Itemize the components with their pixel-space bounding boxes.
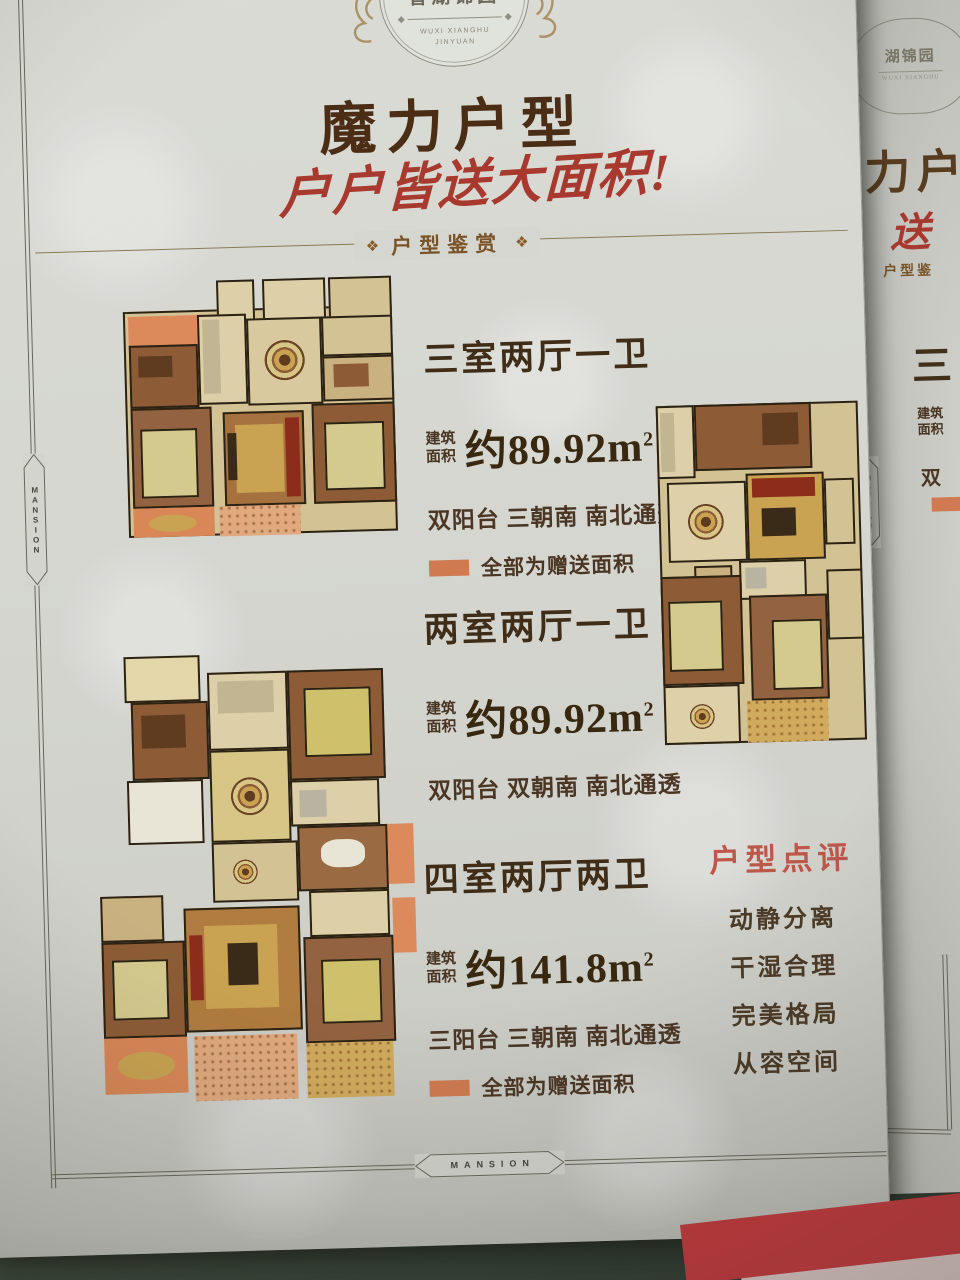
unit-card-2room: 两室两厅一卫 建筑 面积 约89.92m2 双阳台 双朝南 南北通透 xyxy=(423,595,679,806)
floorplan-4room xyxy=(83,644,428,1113)
shelves xyxy=(824,477,855,544)
area-label: 建筑 面积 xyxy=(426,701,457,736)
second-page-unit-partial: 三 xyxy=(911,333,953,392)
review-item: 动静分离 xyxy=(691,896,874,936)
mansion-lens-bottom: MANSION xyxy=(414,1150,565,1178)
carpet-medallion xyxy=(228,853,262,891)
furniture xyxy=(138,355,173,377)
dining-table xyxy=(680,495,731,549)
area-superscript: 2 xyxy=(643,948,655,970)
unit-title: 四室两厅两卫 xyxy=(423,845,674,903)
review-item: 干湿合理 xyxy=(693,944,876,984)
section-title: 户型鉴赏 xyxy=(391,227,504,260)
desk xyxy=(142,715,186,748)
review-items: 动静分离 干湿合理 完美格局 从容空间 xyxy=(691,896,878,1080)
floorplan-3room xyxy=(113,275,407,546)
logo-subtitle-2: JINYUAN xyxy=(381,35,529,50)
room xyxy=(826,568,864,639)
storage-room xyxy=(127,779,205,845)
closet xyxy=(100,895,164,943)
area-value: 约89.92m2 xyxy=(464,412,655,478)
balcony xyxy=(307,1040,395,1098)
tv xyxy=(762,507,797,536)
brochure-photo: 湖锦园 WUXI XIANGHU 力户 送 户型鉴 三 建筑 面积 双 M A … xyxy=(0,0,960,1280)
bathroom xyxy=(321,315,394,356)
area-label-line1: 建筑 xyxy=(917,405,943,421)
unit-area: 建筑 面积 约141.8m2 xyxy=(425,932,677,1000)
unit-area: 建筑 面积 约89.92m2 xyxy=(425,682,677,750)
unit-title: 三室两厅一卫 xyxy=(422,325,673,383)
carpet-medallion xyxy=(258,328,311,393)
main-page: MANSION M A N S I O N 香湖锦园 xyxy=(0,0,891,1258)
bonus-label: 全部为赠送面积 xyxy=(481,548,636,582)
bed xyxy=(303,687,371,758)
balcony xyxy=(747,699,829,743)
bonus-swatch xyxy=(429,1080,469,1097)
balcony xyxy=(387,824,415,885)
bathtub xyxy=(321,839,365,868)
review-panel: 户型点评 动静分离 干湿合理 完美格局 从容空间 xyxy=(690,831,879,1093)
logo-name: 香湖锦园 xyxy=(380,0,529,11)
bonus-swatch xyxy=(429,560,469,577)
review-item: 从容空间 xyxy=(695,1040,878,1080)
unit-features: 双阳台 三朝南 南北通透 xyxy=(427,495,678,536)
area-value: 约89.92m2 xyxy=(464,682,655,748)
bonus-note: 全部为赠送面积 xyxy=(429,547,680,584)
counter xyxy=(202,320,221,394)
area-label: 建筑 面积 xyxy=(426,951,457,986)
second-page-section-partial: 户型鉴 xyxy=(883,259,935,280)
balcony xyxy=(128,315,203,346)
unit-card-3room: 三室两厅一卫 建筑 面积 约89.92m2 双阳台 三朝南 南北通透 全部为赠送… xyxy=(422,325,679,584)
unit-features: 双阳台 双朝南 南北通透 xyxy=(428,765,679,806)
diamond-icon xyxy=(398,16,405,23)
bed xyxy=(140,428,199,498)
fixture xyxy=(745,567,766,589)
second-logo-name: 湖锦园 xyxy=(852,43,960,67)
balcony xyxy=(194,1034,299,1101)
bed xyxy=(321,958,383,1024)
counter xyxy=(217,680,274,714)
area-value: 约141.8m2 xyxy=(464,933,655,999)
logo-subtitle-1: WUXI XIANGHU xyxy=(381,25,529,40)
balcony xyxy=(123,655,201,703)
second-page-slogan-partial: 送 xyxy=(889,200,931,259)
furniture xyxy=(761,412,798,444)
area-superscript: 2 xyxy=(643,698,655,720)
dining-table xyxy=(223,768,278,825)
tv xyxy=(228,943,259,985)
unit-card-4room: 四室两厅两卫 建筑 面积 约141.8m2 三阳台 三朝南 南北通透 全部为赠送… xyxy=(423,845,680,1104)
balcony xyxy=(392,897,417,953)
unit-area: 建筑 面积 约89.92m2 xyxy=(425,412,677,480)
second-page-bonus-swatch xyxy=(932,496,960,512)
sofa xyxy=(752,477,816,498)
sofa xyxy=(189,935,204,1000)
section-header: ❖ 户型鉴赏 ❖ xyxy=(353,226,541,261)
unit-features: 三阳台 三朝南 南北通透 xyxy=(428,1015,679,1056)
bed xyxy=(324,420,386,490)
section-header-row: ❖ 户型鉴赏 ❖ xyxy=(35,220,848,265)
review-title: 户型点评 xyxy=(690,831,873,881)
diamond-icon xyxy=(505,13,512,20)
mansion-lens-left: M A N S I O N xyxy=(23,453,49,586)
second-logo-subtitle: WUXI XIANGHU xyxy=(853,73,960,84)
balcony xyxy=(220,504,301,536)
second-page-logo-crest: 湖锦园 WUXI XIANGHU xyxy=(850,16,960,115)
crest-divider xyxy=(399,14,511,22)
crest-box: 香湖锦园 WUXI XIANGHU JINYUAN xyxy=(378,0,531,69)
furniture xyxy=(333,363,368,388)
second-page-border-vertical xyxy=(942,954,952,1129)
second-page-features-partial: 双 xyxy=(921,461,942,491)
bed xyxy=(112,959,170,1020)
review-item: 完美格局 xyxy=(694,992,877,1032)
second-logo-divider xyxy=(879,70,943,73)
fixture xyxy=(300,789,327,817)
tv xyxy=(228,432,238,480)
second-page-title-partial: 力户 xyxy=(863,134,960,203)
bed xyxy=(772,618,823,689)
unit-title: 两室两厅一卫 xyxy=(423,595,674,653)
counter xyxy=(660,412,675,472)
second-page-area-label: 建筑 面积 xyxy=(917,405,944,437)
bonus-label: 全部为赠送面积 xyxy=(481,1068,636,1102)
brand-crest: 香湖锦园 WUXI XIANGHU JINYUAN xyxy=(343,0,566,80)
rug xyxy=(235,423,286,493)
sofa xyxy=(285,418,302,497)
fleur-ornament-icon: ❖ xyxy=(365,236,379,255)
area-label-line2: 面积 xyxy=(917,421,943,437)
bed xyxy=(668,600,724,671)
bonus-note: 全部为赠送面积 xyxy=(429,1067,680,1104)
table xyxy=(684,698,721,734)
fleur-ornament-icon: ❖ xyxy=(515,232,529,251)
bathroom xyxy=(309,889,390,937)
floorplan-2room xyxy=(649,396,884,752)
frame-border-left xyxy=(17,0,56,1188)
area-label: 建筑 面积 xyxy=(425,431,456,466)
